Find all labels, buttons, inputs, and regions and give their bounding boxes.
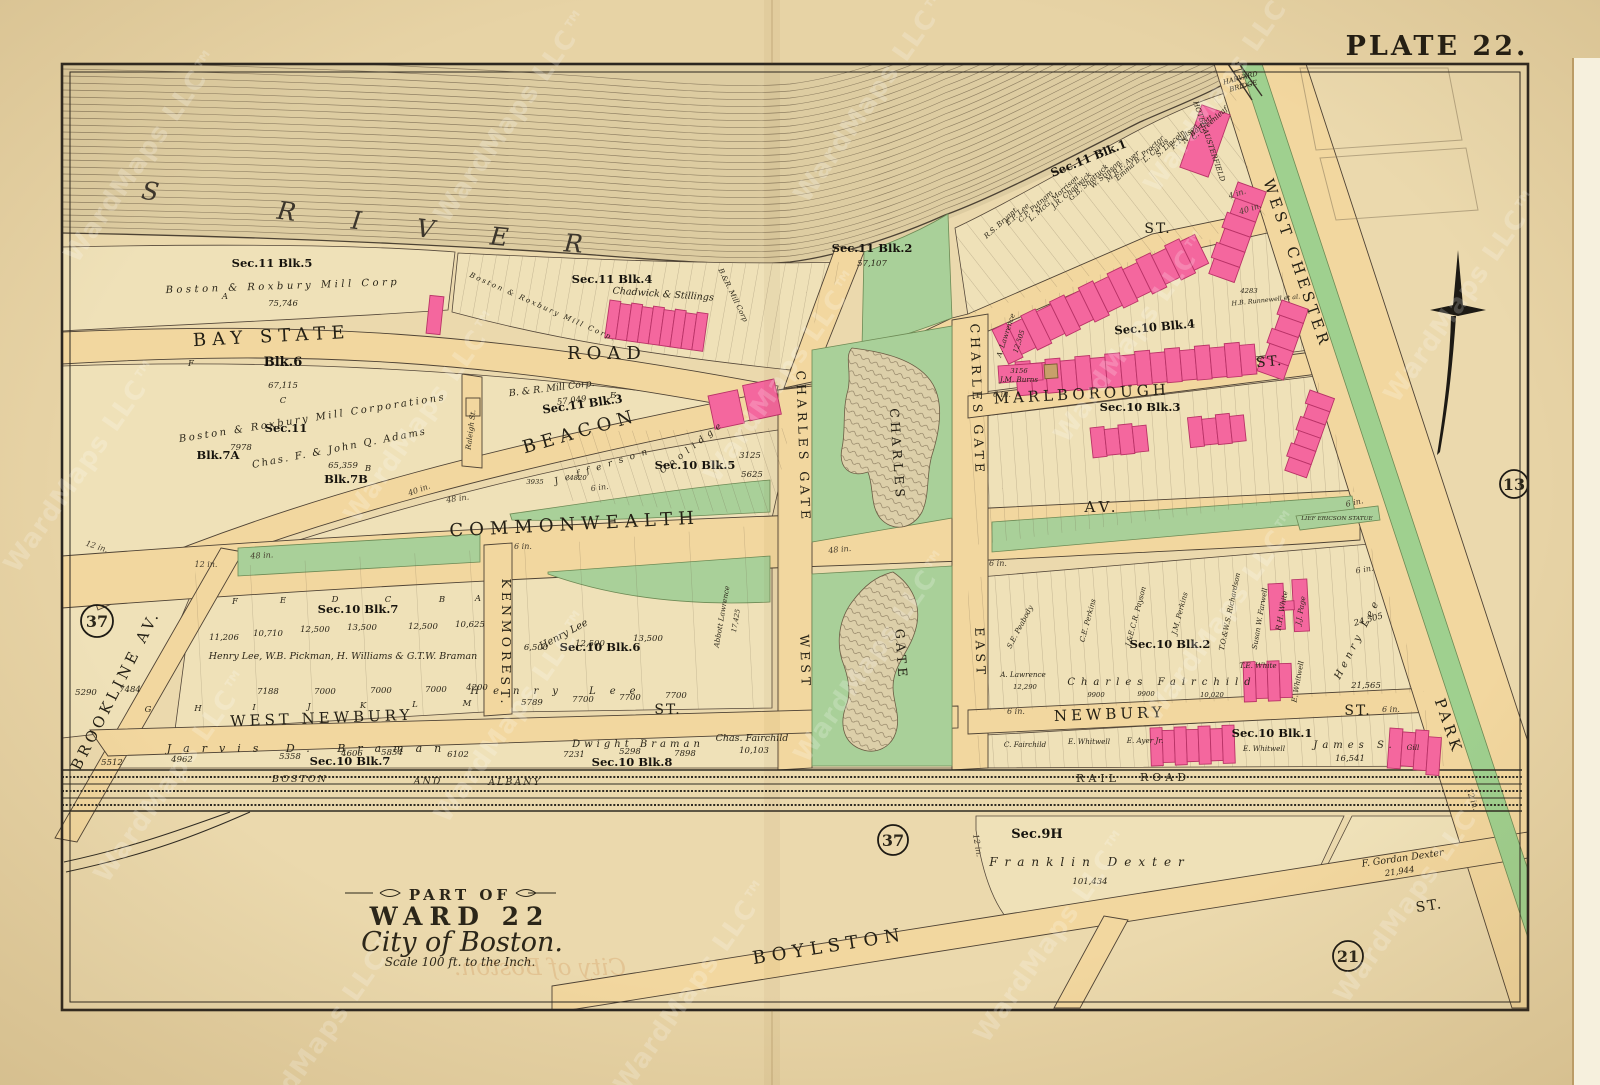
page-edge (1574, 58, 1600, 1085)
atlas-plate-scan: 37 37 13 21 PLATE 22. CHARLES RIVER HARV… (0, 0, 1600, 1085)
vignette (0, 0, 1600, 1085)
map-canvas: 37 37 13 21 PLATE 22. CHARLES RIVER HARV… (0, 0, 1600, 1085)
